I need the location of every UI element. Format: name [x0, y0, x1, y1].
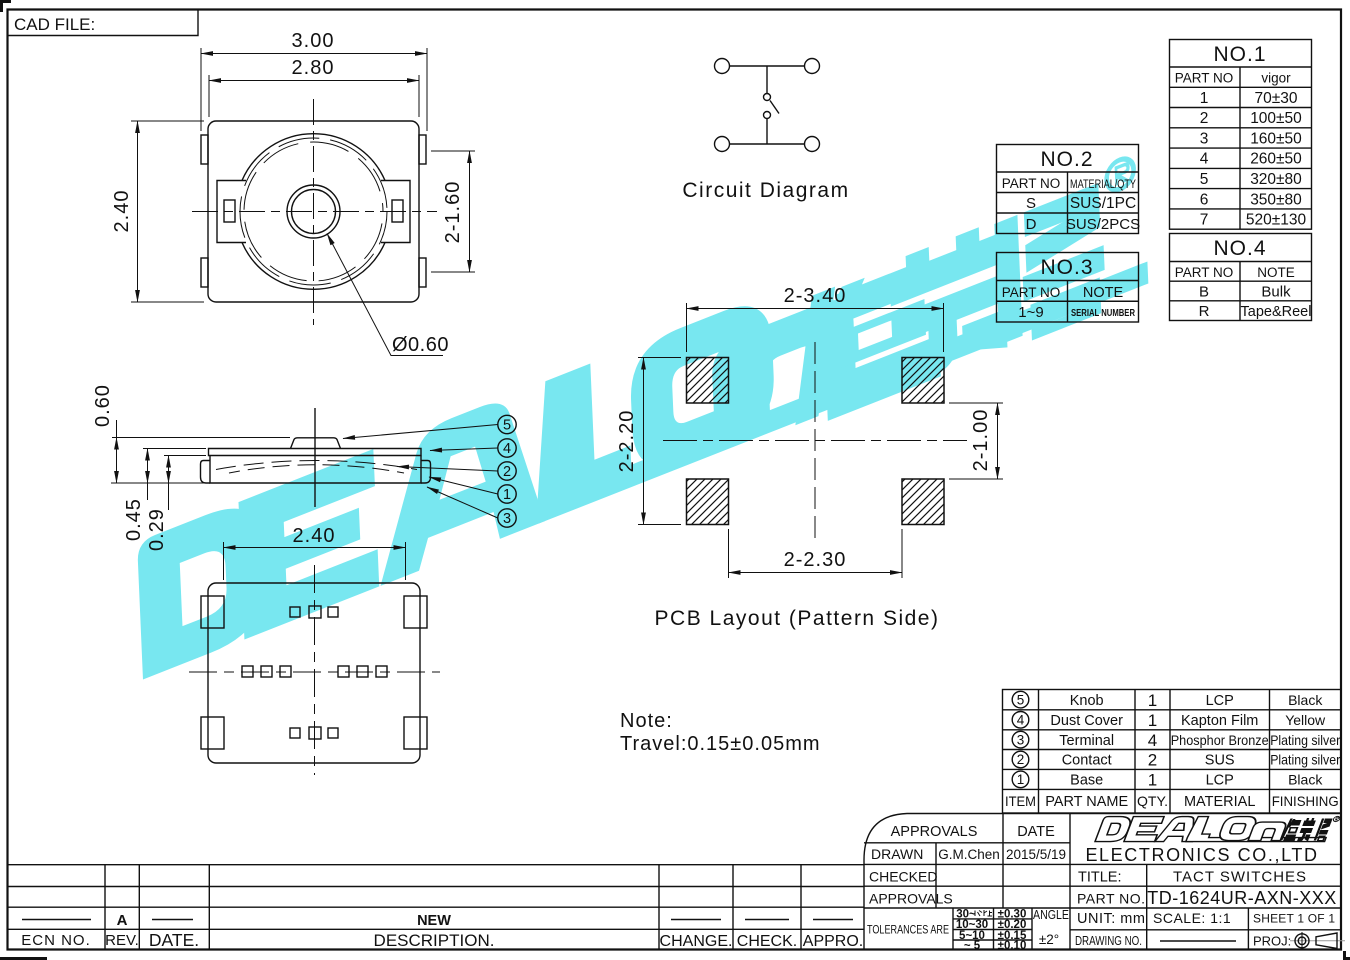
svg-text:SERIAL NUMBER: SERIAL NUMBER — [1071, 307, 1135, 319]
svg-text:NOTE: NOTE — [1257, 265, 1295, 280]
svg-text:vigor: vigor — [1261, 71, 1291, 86]
svg-text:PART NO: PART NO — [1002, 285, 1061, 300]
svg-text:5: 5 — [503, 418, 511, 434]
svg-text:PROJ:: PROJ: — [1253, 934, 1291, 949]
svg-text:2-2.20: 2-2.20 — [616, 410, 638, 473]
svg-text:Black: Black — [1288, 772, 1323, 788]
svg-text:PART NAME: PART NAME — [1045, 794, 1128, 810]
svg-text:Yellow: Yellow — [1285, 712, 1326, 728]
svg-text:5: 5 — [1200, 171, 1209, 188]
svg-text:SCALE: 1:1: SCALE: 1:1 — [1153, 910, 1231, 926]
svg-text:CHANGE.: CHANGE. — [660, 933, 733, 950]
svg-text:LCP: LCP — [1206, 773, 1234, 789]
svg-text:LCP: LCP — [1206, 693, 1234, 709]
svg-text:D: D — [1026, 216, 1037, 233]
svg-text:1: 1 — [1148, 771, 1157, 790]
svg-text:CHECK.: CHECK. — [737, 933, 797, 950]
svg-text:UNIT: mm: UNIT: mm — [1077, 911, 1145, 927]
svg-text:2015/5/19: 2015/5/19 — [1006, 847, 1066, 862]
svg-text:2.80: 2.80 — [292, 57, 335, 79]
svg-text:G.M.Chen: G.M.Chen — [938, 847, 1000, 862]
svg-text:1: 1 — [1148, 691, 1157, 710]
svg-text:SHEET 1 OF 1: SHEET 1 OF 1 — [1253, 912, 1335, 926]
svg-text:3.00: 3.00 — [292, 30, 335, 52]
svg-text:MATERIAL/QTY: MATERIAL/QTY — [1070, 179, 1136, 191]
svg-text:Tape&Reel: Tape&Reel — [1241, 304, 1312, 320]
svg-text:SUS/1PC: SUS/1PC — [1070, 195, 1136, 212]
svg-text:PART NO: PART NO — [1175, 71, 1234, 86]
svg-text:Travel:0.15±0.05mm: Travel:0.15±0.05mm — [620, 733, 821, 755]
svg-text:0.60: 0.60 — [92, 384, 114, 427]
svg-text:2: 2 — [1200, 110, 1209, 127]
svg-text:PCB Layout (Pattern Side): PCB Layout (Pattern Side) — [655, 607, 940, 630]
svg-text:3: 3 — [1017, 732, 1025, 747]
svg-text:1: 1 — [1148, 711, 1157, 730]
svg-text:S: S — [1026, 195, 1036, 212]
svg-text:DESCRIPTION.: DESCRIPTION. — [374, 931, 495, 950]
svg-text:DRAWING NO.: DRAWING NO. — [1075, 934, 1142, 948]
svg-text:2: 2 — [1017, 752, 1025, 767]
svg-text:ITEM: ITEM — [1005, 794, 1036, 809]
svg-text:1: 1 — [1200, 90, 1209, 107]
svg-text:APPRO.: APPRO. — [803, 933, 863, 950]
svg-text:2.40: 2.40 — [293, 525, 336, 547]
svg-text:±2°: ±2° — [1039, 932, 1059, 947]
svg-text:Terminal: Terminal — [1059, 733, 1114, 749]
svg-text:520±130: 520±130 — [1246, 212, 1307, 229]
svg-text:4: 4 — [1017, 713, 1025, 728]
svg-text:ELECTRONICS CO.,LTD: ELECTRONICS CO.,LTD — [1085, 845, 1318, 865]
svg-text:5: 5 — [1017, 692, 1025, 707]
svg-text:0.29: 0.29 — [146, 508, 168, 551]
svg-text:TD-1624UR-AXN-XXX: TD-1624UR-AXN-XXX — [1147, 888, 1337, 908]
svg-text:DATE.: DATE. — [149, 930, 199, 950]
svg-text:70±30: 70±30 — [1255, 90, 1298, 107]
svg-text:0.45: 0.45 — [123, 498, 145, 541]
svg-text:Ø0.60: Ø0.60 — [392, 334, 449, 356]
svg-text:Note:: Note: — [620, 710, 673, 732]
svg-text:NEW: NEW — [417, 913, 451, 929]
svg-text:QTY.: QTY. — [1137, 793, 1168, 809]
svg-text:ECN NO.: ECN NO. — [21, 932, 91, 949]
svg-text:160±50: 160±50 — [1250, 131, 1302, 148]
svg-text:Bulk: Bulk — [1261, 284, 1291, 301]
svg-text:Dust Cover: Dust Cover — [1050, 713, 1123, 729]
svg-text:2: 2 — [1148, 751, 1157, 770]
svg-text:TOLERANCES ARE: TOLERANCES ARE — [867, 925, 949, 937]
svg-text:R: R — [1199, 303, 1210, 320]
svg-text:350±80: 350±80 — [1250, 191, 1302, 208]
svg-text:NO.2: NO.2 — [1040, 148, 1093, 171]
svg-text:SUS/2PCS: SUS/2PCS — [1066, 216, 1140, 233]
svg-text:2-3.40: 2-3.40 — [784, 285, 847, 307]
svg-text:Plating silver: Plating silver — [1270, 752, 1340, 768]
svg-text:NO.1: NO.1 — [1213, 43, 1266, 66]
svg-text:Circuit Diagram: Circuit Diagram — [682, 179, 849, 202]
svg-text:2: 2 — [503, 464, 511, 480]
svg-text:3: 3 — [1200, 131, 1209, 148]
svg-text:APPROVALS: APPROVALS — [891, 824, 978, 840]
svg-text:SUS: SUS — [1205, 753, 1235, 769]
svg-text:6: 6 — [1200, 191, 1209, 208]
svg-text:Plating silver: Plating silver — [1270, 732, 1340, 748]
svg-text:100±50: 100±50 — [1250, 110, 1302, 127]
svg-text:APPROVALS: APPROVALS — [869, 891, 953, 907]
svg-text:PART NO: PART NO — [1175, 265, 1234, 280]
svg-text:2-1.60: 2-1.60 — [442, 181, 464, 244]
svg-text:TACT SWITCHES: TACT SWITCHES — [1173, 869, 1307, 886]
svg-text:Kapton Film: Kapton Film — [1181, 713, 1258, 729]
svg-text:PART NO.: PART NO. — [1077, 891, 1146, 907]
svg-text:±0.10: ±0.10 — [998, 940, 1027, 952]
svg-text:FINISHING: FINISHING — [1272, 793, 1339, 809]
svg-text:ANGLE: ANGLE — [1033, 908, 1069, 922]
svg-text:320±80: 320±80 — [1250, 171, 1302, 188]
svg-text:CHECKED: CHECKED — [869, 869, 937, 885]
svg-text:2-1.00: 2-1.00 — [970, 409, 992, 472]
svg-text:Base: Base — [1070, 773, 1103, 789]
svg-text:1: 1 — [1017, 772, 1025, 787]
svg-text:CAD FILE:: CAD FILE: — [14, 15, 95, 34]
svg-text:~ 5: ~ 5 — [964, 940, 981, 952]
svg-text:DRAWN: DRAWN — [871, 846, 923, 862]
svg-text:NOTE: NOTE — [1083, 285, 1124, 301]
svg-text:PART NO: PART NO — [1002, 176, 1061, 191]
svg-text:NO.4: NO.4 — [1213, 237, 1266, 260]
svg-text:2.40: 2.40 — [111, 190, 133, 233]
svg-text:Contact: Contact — [1062, 753, 1112, 769]
svg-text:A: A — [117, 912, 128, 929]
svg-text:7: 7 — [1200, 212, 1209, 229]
svg-text:NO.3: NO.3 — [1040, 256, 1093, 279]
svg-text:1: 1 — [503, 487, 511, 503]
svg-text:2-2.30: 2-2.30 — [784, 549, 847, 571]
svg-text:REV.: REV. — [105, 932, 139, 949]
svg-text:4: 4 — [503, 441, 511, 457]
svg-text:4: 4 — [1200, 151, 1209, 168]
svg-text:TITLE:: TITLE: — [1078, 870, 1122, 886]
svg-text:260±50: 260±50 — [1250, 151, 1302, 168]
svg-text:DATE: DATE — [1017, 824, 1055, 840]
svg-text:B: B — [1199, 284, 1209, 301]
svg-text:MATERIAL: MATERIAL — [1184, 794, 1255, 810]
svg-text:3: 3 — [503, 511, 511, 527]
svg-text:1~9: 1~9 — [1018, 304, 1043, 321]
svg-text:4: 4 — [1148, 731, 1157, 750]
svg-text:Black: Black — [1288, 692, 1323, 708]
svg-text:Knob: Knob — [1070, 693, 1104, 709]
svg-text:Phosphor Bronze: Phosphor Bronze — [1171, 732, 1269, 748]
